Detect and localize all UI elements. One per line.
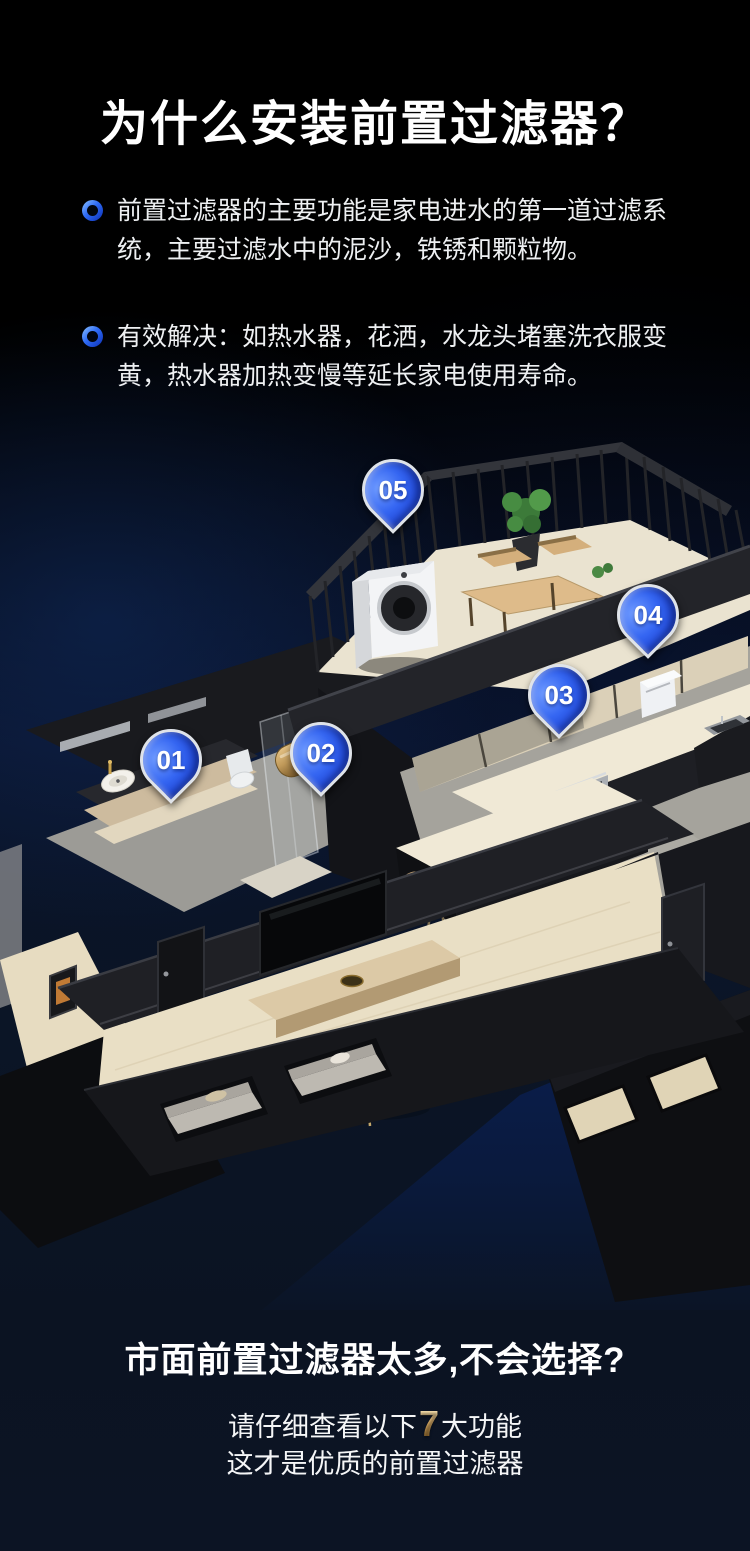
- ring-bullet-icon: [82, 326, 103, 347]
- footer-headline: 市面前置过滤器太多,不会选择?: [0, 1332, 750, 1383]
- apartment-diagram: 01 02 03 04 05: [0, 440, 750, 1310]
- footer-section: 市面前置过滤器太多,不会选择? 请仔细查看以下7大功能 这才是优质的前置过滤器: [0, 1332, 750, 1483]
- bullet-list: 前置过滤器的主要功能是家电进水的第一道过滤系统，主要过滤水中的泥沙，铁锈和颗粒物…: [82, 192, 682, 444]
- gold-number: 7: [417, 1409, 441, 1439]
- bullet-text: 前置过滤器的主要功能是家电进水的第一道过滤系统，主要过滤水中的泥沙，铁锈和颗粒物…: [117, 192, 682, 270]
- grass-tuft: [603, 563, 613, 573]
- bullet-item: 有效解决：如热水器，花洒，水龙头堵塞洗衣服变黄，热水器加热变慢等延长家电使用寿命…: [82, 318, 682, 396]
- grass-tuft: [592, 566, 604, 578]
- bullet-text: 有效解决：如热水器，花洒，水龙头堵塞洗衣服变黄，热水器加热变慢等延长家电使用寿命…: [117, 318, 682, 396]
- footer-line2: 请仔细查看以下7大功能: [0, 1409, 750, 1446]
- bullet-item: 前置过滤器的主要功能是家电进水的第一道过滤系统，主要过滤水中的泥沙，铁锈和颗粒物…: [82, 192, 682, 270]
- page-title: 为什么安装前置过滤器？: [0, 84, 750, 154]
- footer-line3: 这才是优质的前置过滤器: [0, 1446, 750, 1483]
- ring-bullet-icon: [82, 200, 103, 221]
- promo-page: 为什么安装前置过滤器？ 前置过滤器的主要功能是家电进水的第一道过滤系统，主要过滤…: [0, 0, 750, 1551]
- apartment-illustration: [0, 440, 750, 1310]
